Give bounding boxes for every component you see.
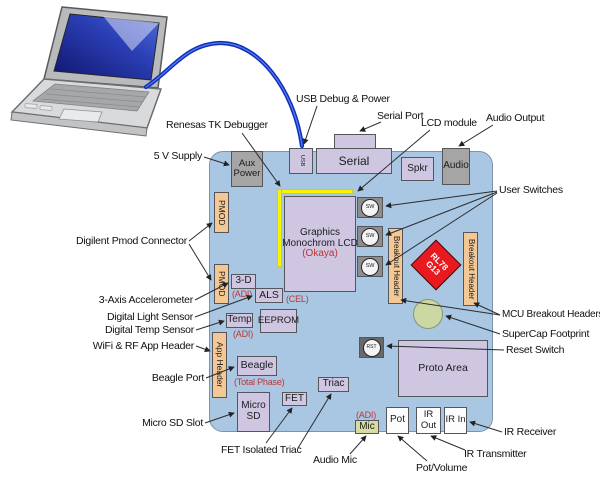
accelerometer-chip: 3-D	[231, 274, 256, 289]
debugger-bracket-top	[277, 189, 353, 194]
beagle-connector: Beagle	[237, 356, 277, 376]
callout-mcu-breakout-headers: MCU Breakout Headers	[502, 309, 600, 320]
user-switch-3[interactable]: SW	[357, 256, 383, 277]
ir-in-label: IR In	[445, 415, 465, 425]
audio-jack: Audio	[442, 148, 470, 185]
reset-switch-cap[interactable]: RST	[363, 339, 381, 357]
serial-label: Serial	[339, 155, 370, 168]
user-switch-2-cap[interactable]: SW	[361, 228, 379, 246]
mic-vendor-label: (ADI)	[356, 410, 376, 420]
supercap-footprint	[413, 299, 443, 329]
eeprom-chip: EEPROM	[260, 309, 297, 333]
micro-sd-label: Micro SD	[238, 401, 269, 423]
beagle-label: Beagle	[241, 360, 274, 371]
light-sensor-chip: ALS	[255, 288, 283, 303]
callout-ir-receiver: IR Receiver	[504, 426, 556, 438]
callout-fet-isolated-triac: FET Isolated Triac	[221, 444, 302, 456]
callout-audio-mic: Audio Mic	[313, 454, 357, 466]
user-switch-1-cap[interactable]: SW	[361, 199, 379, 217]
callout-digital-light-sensor: Digital Light Sensor	[98, 311, 193, 323]
callout-beagle-port: Beagle Port	[144, 372, 204, 384]
callout-supercap-footprint: SuperCap Footprint	[502, 328, 589, 340]
ir-out-module: IR Out	[416, 407, 441, 434]
callout-ir-transmitter: IR Transmitter	[464, 448, 526, 460]
callout-micro-sd-slot: Micro SD Slot	[133, 417, 203, 429]
proto-area: Proto Area	[398, 340, 488, 397]
user-switch-2[interactable]: SW	[357, 226, 383, 247]
speaker: Spkr	[401, 157, 434, 181]
callout-audio-output: Audio Output	[486, 112, 544, 124]
ir-in-module: IR In	[444, 407, 467, 434]
mic-label: Mic	[359, 422, 375, 433]
aux-power-label: Aux Power	[232, 159, 262, 180]
user-switch-3-cap[interactable]: SW	[361, 258, 379, 276]
app-header: App Header	[212, 332, 227, 398]
sw2-label: SW	[366, 234, 375, 240]
lcd-vendor-label: (Okaya)	[302, 249, 338, 260]
pmod-2-label: PMOD	[217, 271, 226, 297]
triac-chip: Triac	[318, 377, 349, 392]
callout-3-axis-accelerometer: 3-Axis Accelerometer	[93, 294, 193, 306]
pmod-connector-2: PMOD	[214, 264, 229, 304]
pot-label: Pot	[390, 415, 405, 426]
light-sensor-chip-label: ALS	[259, 290, 279, 301]
temp-sensor-vendor-label: (ADI)	[233, 329, 253, 339]
accelerometer-vendor-label: (ADI)	[232, 289, 252, 299]
breakout-header-2-label: Breakout Header	[466, 239, 475, 299]
aux-power-connector: Aux Power	[231, 151, 263, 187]
serial-connector: Serial	[316, 148, 392, 174]
audio-label: Audio	[443, 161, 469, 172]
eeprom-label: EEPROM	[258, 316, 299, 326]
usb-connector: USB	[289, 148, 313, 174]
laptop-image	[11, 7, 167, 136]
rst-label: RST	[367, 345, 377, 350]
speaker-label: Spkr	[407, 164, 428, 175]
ir-out-label: IR Out	[417, 410, 440, 431]
temp-sensor-chip-label: Temp	[227, 315, 251, 326]
callout-reset-switch: Reset Switch	[506, 344, 564, 356]
fet-chip: FET	[282, 392, 307, 406]
board-diagram: Aux Power USB Serial Spkr Audio Graphics…	[0, 0, 600, 481]
debugger-bracket-left	[277, 189, 282, 267]
pmod-connector-1: PMOD	[214, 192, 229, 233]
app-header-label: App Header	[215, 342, 224, 387]
sw3-label: SW	[366, 264, 375, 270]
callout-serial-port: Serial Port	[377, 110, 423, 122]
micro-sd-slot: Micro SD	[237, 392, 270, 432]
accelerometer-chip-label: 3-D	[235, 276, 251, 287]
user-switch-1[interactable]: SW	[357, 197, 383, 218]
lcd-title-line1: Graphics	[300, 228, 340, 239]
lcd-display: Graphics Monochrom LCD (Okaya)	[284, 196, 356, 292]
callout-5v-supply: 5 V Supply	[120, 150, 202, 162]
callout-usb-debug-power: USB Debug & Power	[296, 93, 390, 105]
proto-area-label: Proto Area	[418, 363, 468, 374]
pmod-1-label: PMOD	[217, 200, 226, 226]
callout-wifi-rf-app-header: WiFi & RF App Header	[90, 340, 194, 352]
callout-digital-temp-sensor: Digital Temp Sensor	[95, 324, 194, 336]
temp-sensor-chip: Temp	[226, 313, 253, 328]
breakout-header-2: Breakout Header	[463, 232, 478, 306]
breakout-header-1: Breakout Header	[388, 228, 403, 304]
callout-user-switches: User Switches	[499, 184, 563, 196]
callout-digilent-pmod-connector: Digilent Pmod Connector	[75, 235, 187, 247]
callout-renesas-tk-debugger: Renesas TK Debugger	[166, 119, 268, 131]
callout-lcd-module: LCD module	[421, 117, 477, 129]
callout-pot-volume: Pot/Volume	[416, 462, 467, 474]
sw1-label: SW	[366, 205, 375, 211]
fet-label: FET	[285, 394, 304, 405]
breakout-header-1-label: Breakout Header	[391, 236, 400, 296]
beagle-vendor-label: (Total Phase)	[234, 377, 284, 387]
potentiometer[interactable]: Pot	[386, 407, 409, 434]
triac-label: Triac	[323, 379, 345, 390]
usb-label: USB	[298, 155, 304, 166]
reset-switch[interactable]: RST	[359, 337, 384, 358]
light-sensor-vendor-label: (CEL)	[286, 294, 309, 304]
microphone: Mic	[355, 420, 379, 434]
